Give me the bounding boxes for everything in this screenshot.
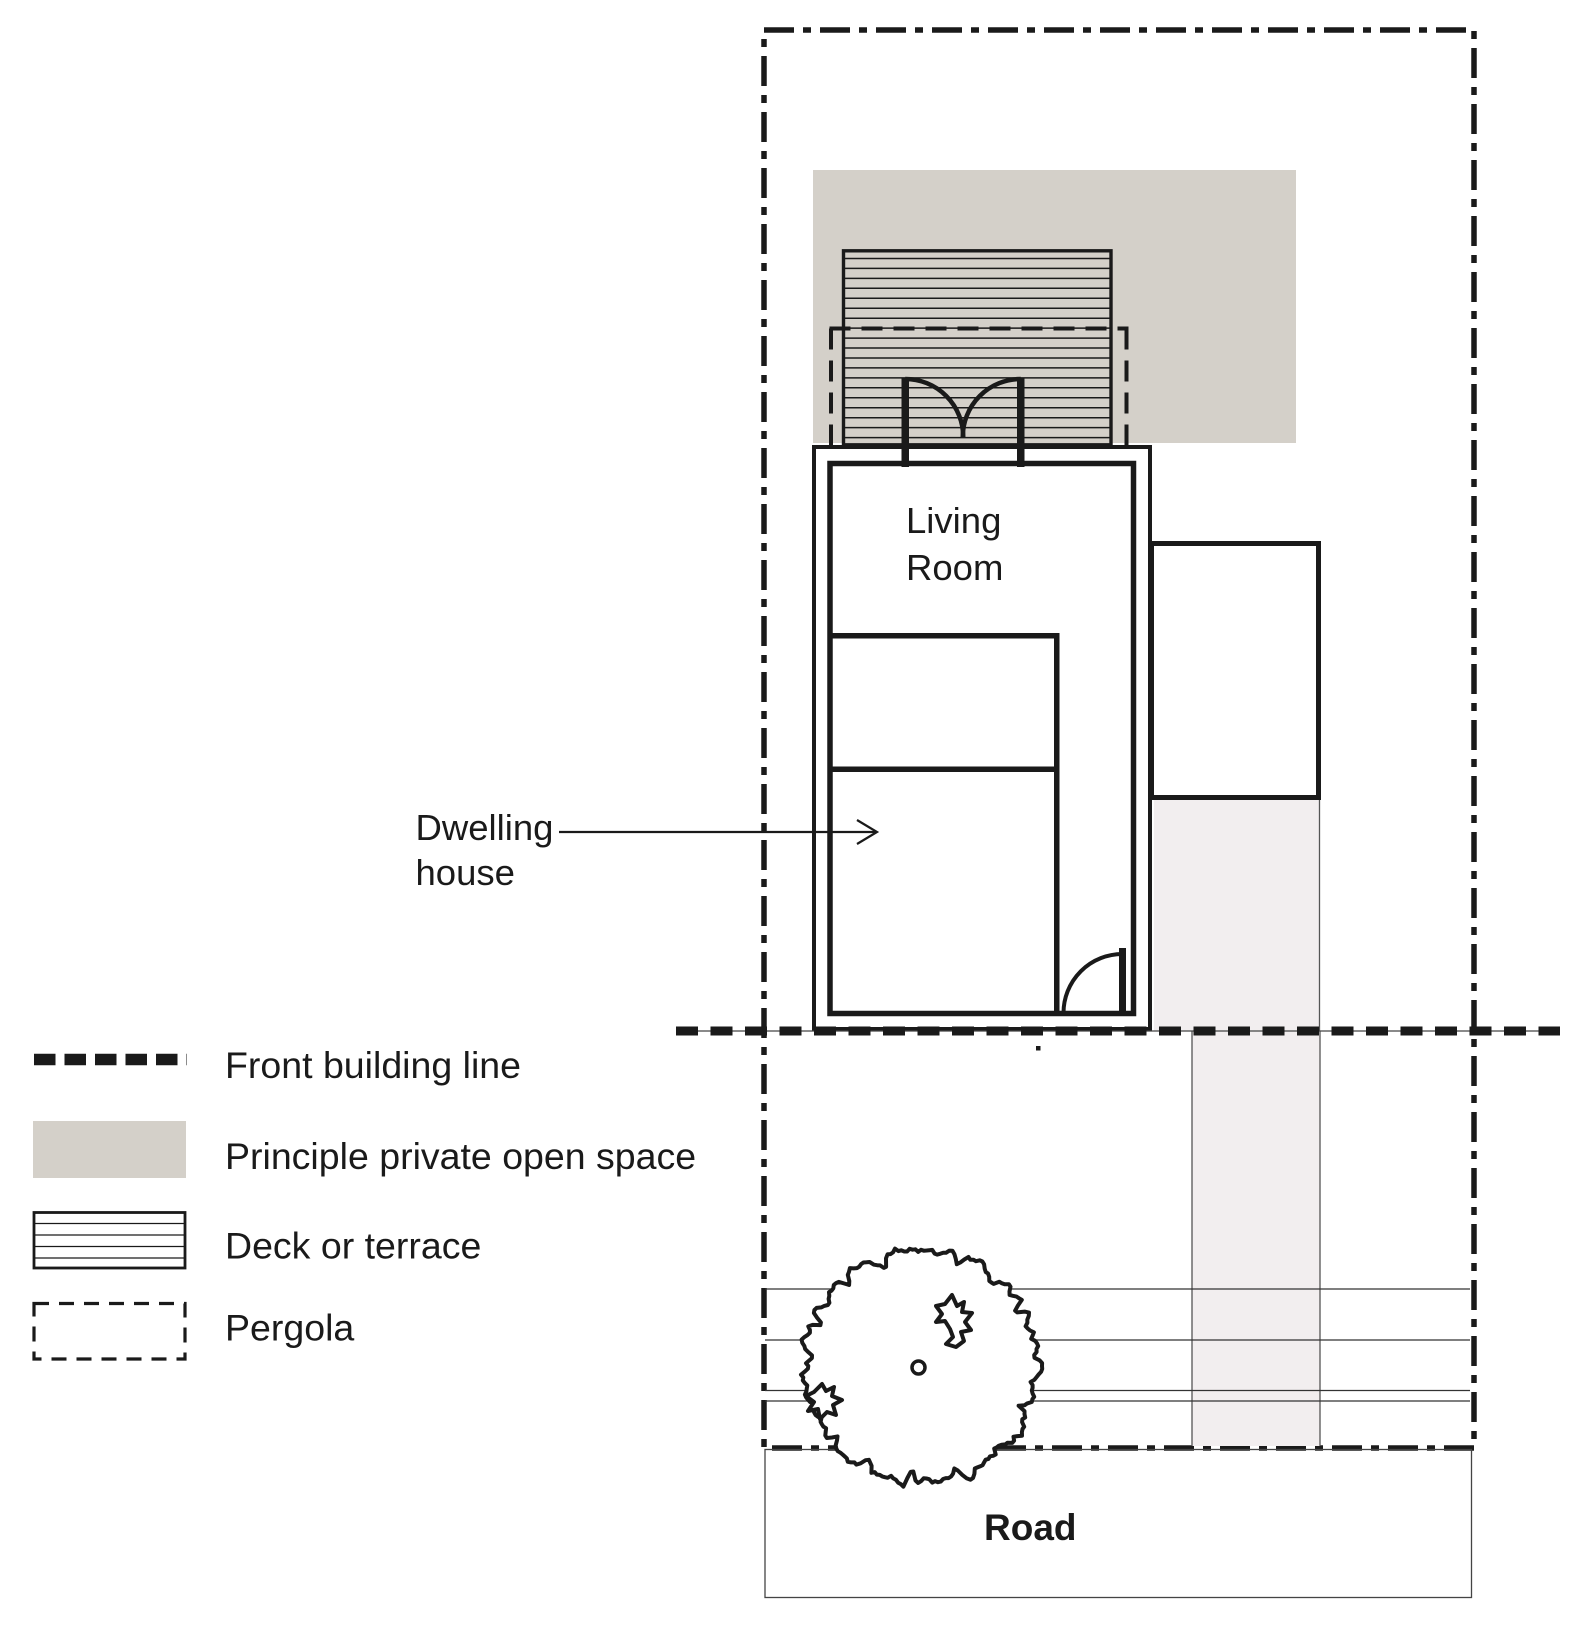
svg-text:Deck or terrace: Deck or terrace [225, 1225, 481, 1267]
svg-text:Principle private open space: Principle private open space [225, 1135, 696, 1177]
svg-text:Dwelling: Dwelling [416, 807, 554, 848]
svg-text:house: house [416, 852, 515, 893]
svg-text:Road: Road [984, 1507, 1077, 1548]
svg-text:Front building line: Front building line [225, 1044, 521, 1086]
svg-text:Pergola: Pergola [225, 1307, 354, 1349]
svg-text:Room: Room [906, 547, 1003, 588]
svg-text:Living: Living [906, 500, 1001, 541]
